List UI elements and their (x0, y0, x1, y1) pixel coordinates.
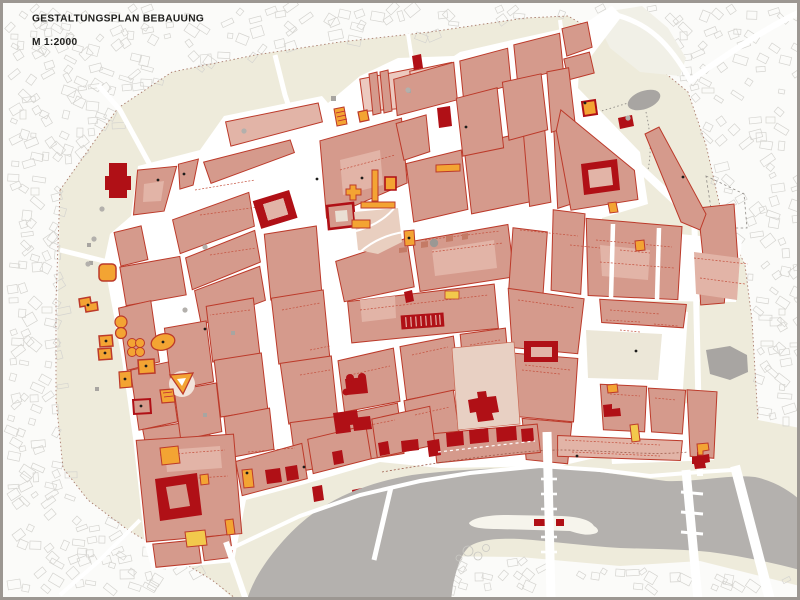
svg-text:M 1:2000: M 1:2000 (32, 37, 77, 48)
svg-text:GESTALTUNGSPLAN BEBAUUNG: GESTALTUNGSPLAN BEBAUUNG (32, 14, 204, 25)
